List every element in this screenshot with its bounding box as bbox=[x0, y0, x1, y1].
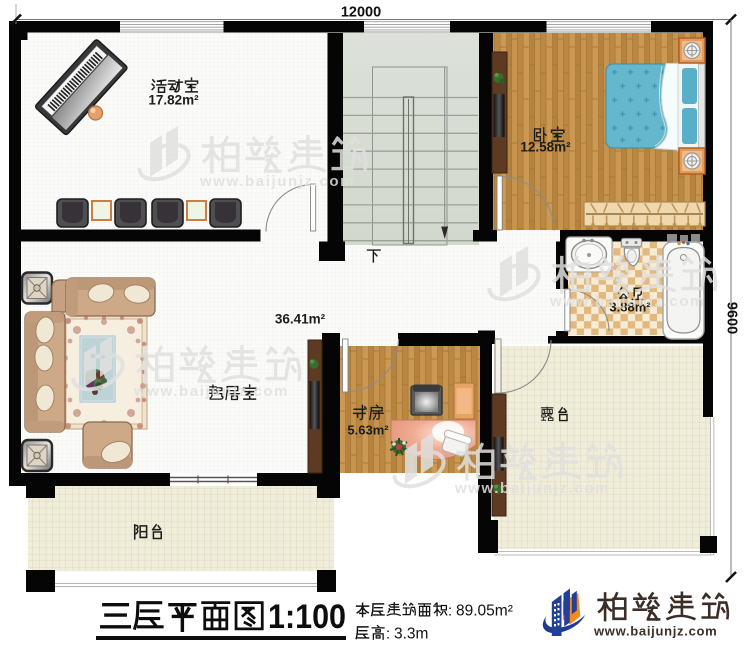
svg-text:www.baijunjz.com: www.baijunjz.com bbox=[549, 293, 705, 310]
svg-text:3.3m: 3.3m bbox=[394, 626, 428, 643]
svg-text:www.baijunjz.com: www.baijunjz.com bbox=[199, 173, 355, 190]
svg-text:17.82m²: 17.82m² bbox=[148, 93, 199, 108]
svg-text:89.05m²: 89.05m² bbox=[456, 603, 513, 620]
svg-text:www.baijunjz.com: www.baijunjz.com bbox=[593, 624, 717, 639]
svg-text:9600: 9600 bbox=[724, 302, 740, 334]
svg-text:12.58m²: 12.58m² bbox=[520, 140, 571, 155]
svg-text:www.baijunjz.com: www.baijunjz.com bbox=[454, 480, 610, 497]
svg-text:12000: 12000 bbox=[341, 5, 381, 21]
svg-text::: : bbox=[448, 603, 452, 620]
svg-text:1:100: 1:100 bbox=[268, 598, 346, 636]
svg-text:www.baijunjz.com: www.baijunjz.com bbox=[133, 383, 289, 400]
svg-text::: : bbox=[386, 626, 390, 643]
svg-text:36.41m²: 36.41m² bbox=[275, 312, 326, 327]
svg-text:5.63m²: 5.63m² bbox=[347, 423, 389, 438]
